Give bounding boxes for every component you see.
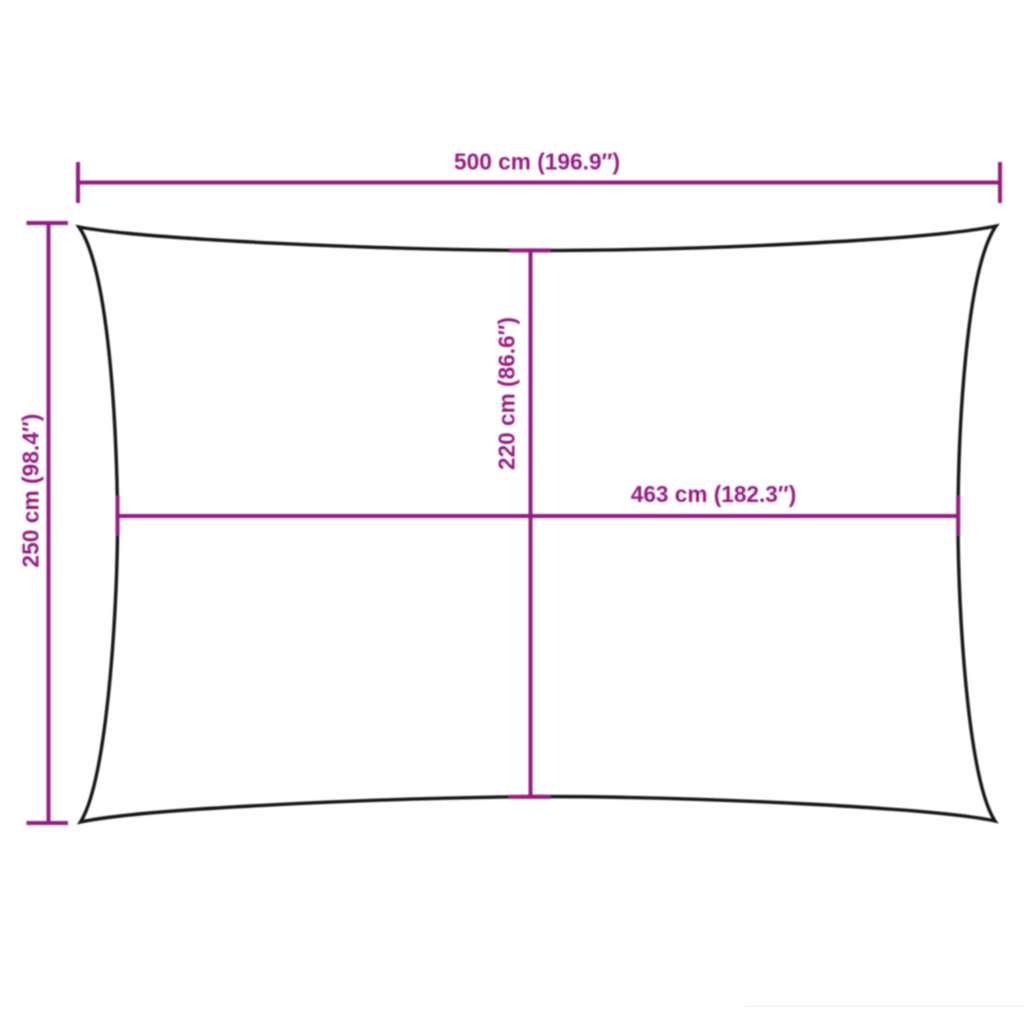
svg-text:500 cm (196.9″): 500 cm (196.9″) — [454, 149, 620, 175]
svg-text:250 cm (98.4″): 250 cm (98.4″) — [18, 414, 44, 568]
svg-text:463 cm (182.3″): 463 cm (182.3″) — [631, 481, 797, 507]
svg-text:220 cm (86.6″): 220 cm (86.6″) — [494, 317, 520, 470]
